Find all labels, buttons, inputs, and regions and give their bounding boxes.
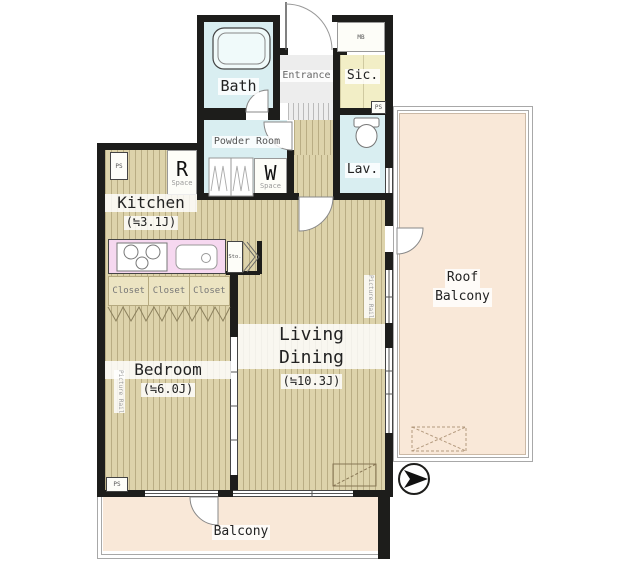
storage-box: Sto. bbox=[227, 241, 243, 273]
closet-3: Closet bbox=[190, 276, 230, 306]
wall bbox=[385, 323, 393, 348]
closet-label: Closet bbox=[153, 286, 186, 296]
closet-row: Closet Closet Closet bbox=[108, 276, 230, 306]
w-space-letter: W bbox=[264, 164, 276, 182]
picture-rail-label-bedroom: Picture Rail bbox=[114, 370, 125, 413]
wall bbox=[333, 193, 392, 200]
entrance-label: Entrance bbox=[278, 70, 335, 82]
r-space-letter: R bbox=[176, 159, 188, 179]
ps-label: PS bbox=[113, 481, 120, 488]
wall bbox=[97, 143, 105, 497]
closet-label: Closet bbox=[112, 286, 145, 296]
wall bbox=[280, 48, 288, 55]
wall bbox=[273, 15, 280, 120]
wall bbox=[218, 490, 233, 497]
roof-balcony-label: Roof Balcony bbox=[399, 269, 526, 307]
picture-rail-label-living: Picture Rail bbox=[364, 275, 375, 318]
wall bbox=[385, 433, 393, 497]
living-dining-label: Living Dining (≒10.3J) bbox=[238, 324, 385, 392]
bedroom-balcony-window bbox=[145, 490, 218, 497]
washer-space: W Space bbox=[254, 158, 287, 196]
wall-balcony-right bbox=[378, 497, 390, 559]
wall bbox=[204, 108, 246, 120]
pipe-space-kitchen: PS bbox=[110, 152, 128, 180]
balcony-label: Balcony bbox=[103, 525, 379, 540]
lav-room bbox=[340, 115, 385, 193]
pipe-space-lav: PS bbox=[371, 101, 386, 114]
w-space-label: Space bbox=[260, 182, 281, 190]
wall bbox=[257, 241, 262, 274]
closet-2: Closet bbox=[149, 276, 189, 306]
bedroom-living-sliding-door bbox=[230, 337, 238, 475]
living-side-window-1 bbox=[385, 270, 393, 323]
floor-hallway bbox=[294, 115, 333, 155]
ps-label: PS bbox=[115, 163, 122, 170]
wall bbox=[385, 15, 393, 168]
entrance-door bbox=[286, 2, 332, 50]
kitchen-label: Kitchen (≒3.1J) bbox=[105, 194, 197, 231]
bath-label: Bath bbox=[204, 78, 273, 95]
powder-room-label: Powder Room bbox=[202, 136, 292, 148]
kitchen-counter bbox=[108, 239, 226, 274]
closet-label: Closet bbox=[193, 286, 226, 296]
meter-box: MB bbox=[337, 22, 385, 52]
mb-label: MB bbox=[357, 34, 364, 41]
sic-label: Sic. bbox=[340, 69, 385, 84]
sto-label: Sto. bbox=[228, 254, 241, 260]
wall bbox=[230, 274, 238, 337]
wall bbox=[385, 193, 393, 226]
pipe-space-bedroom: PS bbox=[106, 477, 128, 492]
wall bbox=[332, 15, 392, 22]
r-space-label: Space bbox=[171, 179, 192, 187]
roof-balcony-door-gap bbox=[385, 226, 393, 252]
closet-1: Closet bbox=[108, 276, 149, 306]
lav-label: Lav. bbox=[340, 163, 385, 178]
wall bbox=[197, 15, 280, 22]
wall bbox=[204, 193, 299, 200]
ps-label: PS bbox=[375, 104, 382, 111]
wall bbox=[385, 252, 393, 270]
living-balcony-window bbox=[233, 490, 353, 497]
entrance-step bbox=[288, 103, 335, 120]
wall bbox=[97, 143, 204, 150]
living-side-window-2 bbox=[385, 348, 393, 433]
compass-north-icon bbox=[399, 464, 429, 494]
wall bbox=[197, 15, 204, 200]
floor-plan: Closet Closet Closet R Space W Space bbox=[0, 0, 640, 569]
lav-window bbox=[385, 168, 393, 193]
refrigerator-space: R Space bbox=[167, 150, 197, 195]
